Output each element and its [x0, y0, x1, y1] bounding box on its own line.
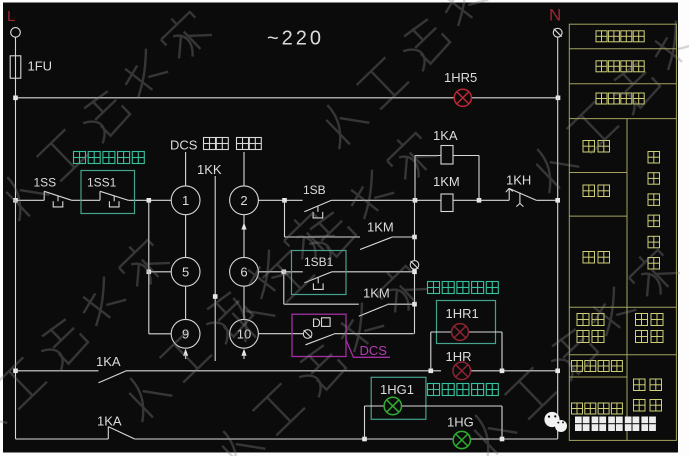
svg-text:D: D: [312, 316, 321, 330]
svg-text:DCS: DCS: [170, 138, 198, 153]
svg-text:N: N: [549, 6, 561, 25]
svg-text:1KM: 1KM: [433, 174, 460, 189]
svg-text:1KM: 1KM: [367, 220, 394, 235]
svg-text:1KA: 1KA: [96, 354, 121, 369]
svg-text:~220: ~220: [267, 28, 324, 50]
svg-text:5: 5: [182, 264, 189, 279]
svg-text:1SS1: 1SS1: [87, 176, 117, 190]
svg-text:1HG: 1HG: [447, 415, 474, 430]
svg-text:1KA: 1KA: [97, 414, 122, 429]
svg-text:1SB: 1SB: [303, 183, 326, 197]
svg-text:1FU: 1FU: [28, 59, 53, 74]
svg-text:1HG1: 1HG1: [380, 382, 414, 397]
svg-text:1: 1: [182, 193, 189, 208]
svg-text:1HR5: 1HR5: [444, 70, 477, 85]
svg-text:DCS: DCS: [360, 343, 388, 358]
svg-text:1KK: 1KK: [197, 162, 222, 177]
svg-text:L: L: [7, 8, 15, 25]
svg-text:1KA: 1KA: [433, 128, 458, 143]
svg-text:1HR: 1HR: [446, 349, 472, 364]
svg-text:6: 6: [240, 264, 247, 279]
svg-text:1SS: 1SS: [34, 176, 57, 190]
svg-text:2: 2: [240, 193, 247, 208]
svg-text:1KH: 1KH: [506, 173, 531, 188]
svg-text:1HR1: 1HR1: [446, 306, 479, 321]
